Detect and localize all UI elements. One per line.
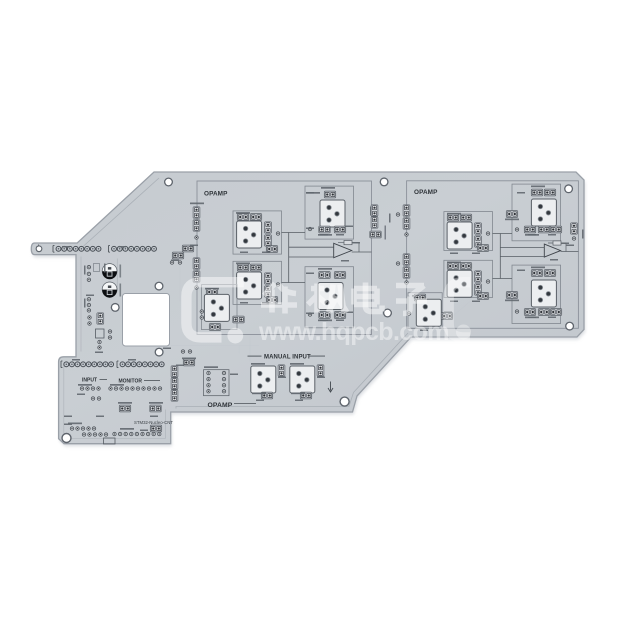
svg-text:OPAMP: OPAMP xyxy=(208,402,233,409)
svg-text:MONITOR: MONITOR xyxy=(119,379,143,385)
svg-text:STM32-Nucleo-CNT: STM32-Nucleo-CNT xyxy=(134,420,173,425)
svg-text:OPAMP: OPAMP xyxy=(204,191,228,198)
svg-text:OPAMP: OPAMP xyxy=(414,189,438,196)
svg-text:INPUT: INPUT xyxy=(82,378,97,384)
svg-text:www.hqpcb.com: www.hqpcb.com xyxy=(258,318,449,346)
svg-text:MANUAL INPUT: MANUAL INPUT xyxy=(264,355,311,361)
